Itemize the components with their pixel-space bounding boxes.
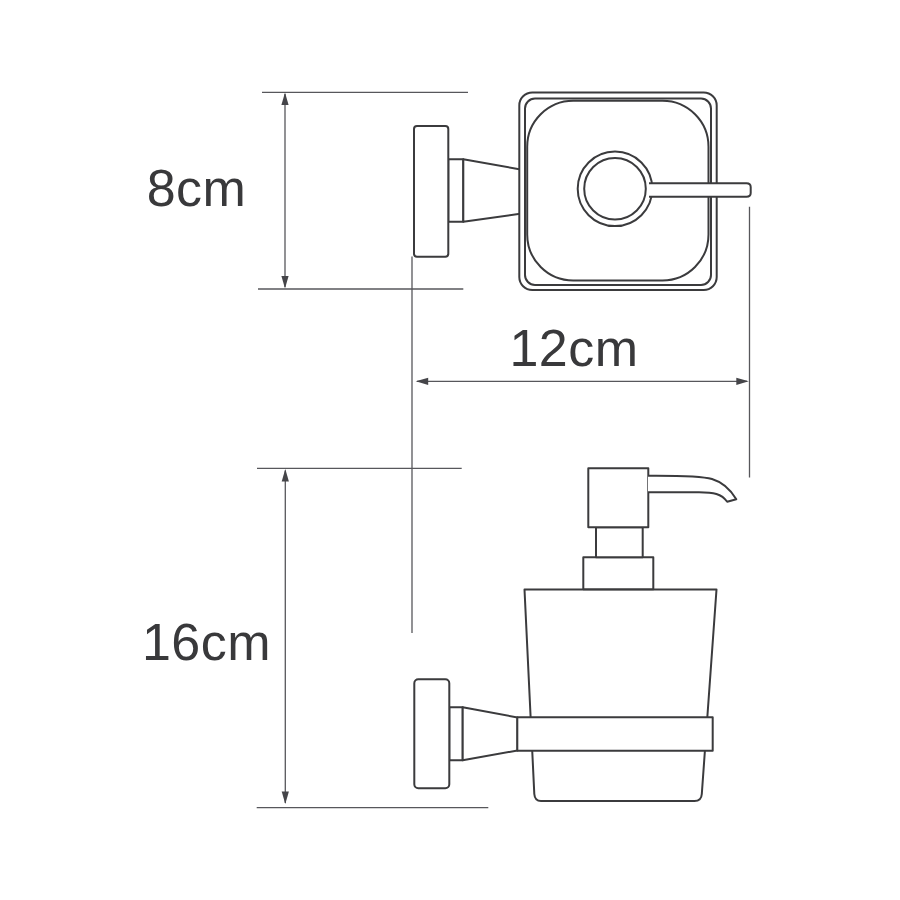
dim-12cm-label: 12cm [509,319,638,377]
side-view-bracket-flange [449,707,462,760]
product-dimension-drawing: 8cm 12cm 16cm [0,0,900,900]
dim-8cm-label: 8cm [147,159,247,217]
dim-12cm-arrow-right [736,378,749,385]
dim-16cm-arrow-up [282,469,289,482]
side-view-pump-neck [596,527,643,557]
top-view-bracket-flange [448,159,463,221]
top-view-wall-plate [414,126,448,257]
dim-8cm-arrow-up [281,93,288,106]
side-view-pump-collar [583,557,653,589]
dim-16cm-label: 16cm [142,613,271,671]
side-view-holder-ring [517,717,712,750]
side-view-wall-plate [414,679,449,788]
side-view-pump-spout [648,476,736,502]
dim-16cm-arrow-down [282,792,289,805]
side-view-bracket-cone [463,707,518,760]
top-view-pump-inner-circle [584,158,646,220]
dimension-diagram-svg: 8cm 12cm 16cm [0,0,900,900]
side-view-pump-head [588,468,648,527]
dim-12cm-arrow-left [416,378,429,385]
side-view-glass-cup [525,590,717,802]
top-view-bracket-cone [463,159,523,221]
top-view [414,93,751,291]
dim-8cm-arrow-down [281,276,288,289]
top-view-spout-handle [649,183,751,196]
side-view [414,468,736,801]
